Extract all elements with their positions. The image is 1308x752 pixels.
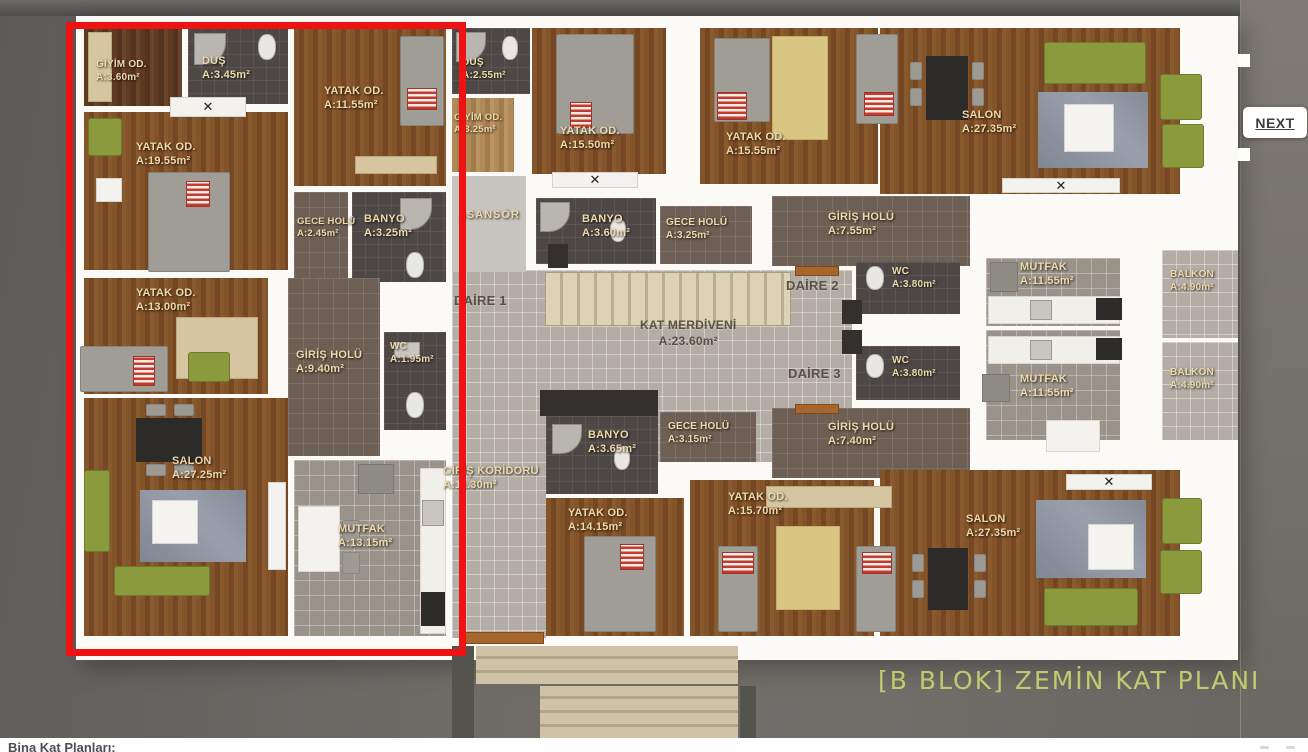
wardrobe-icon (552, 172, 638, 188)
room-area: A:15.55m² (726, 144, 786, 158)
stove (1096, 298, 1122, 320)
footer-mark (1260, 746, 1269, 749)
red-striped-throw (862, 552, 892, 574)
room-label: GECE HOLÜ (666, 217, 727, 228)
room-gece-holu-3: GECE HOLÜA:3.15m² (660, 412, 756, 462)
footer-mark (1286, 746, 1295, 749)
floor-plan-page: GİYİM OD.A:3.60m² DUŞA:3.45m² YATAK OD.A… (0, 0, 1308, 752)
shaft (548, 244, 568, 268)
red-striped-throw (722, 552, 754, 574)
stairs-label: KAT MERDİVENİA:23.60m² (640, 318, 736, 349)
green-armchair (1160, 74, 1202, 120)
room-giris-holu-3: GİRİŞ HOLÜA:7.40m² (772, 408, 970, 478)
room-label: WC (892, 355, 909, 366)
room-label: BALKON (1170, 367, 1214, 378)
shaft (842, 330, 862, 354)
room-area: A:2.55m² (462, 69, 506, 82)
yellow-bed (772, 36, 828, 140)
room-label: BANYO (588, 429, 629, 441)
next-button[interactable]: NEXT (1243, 107, 1307, 138)
room-label: SALON (966, 513, 1006, 525)
wall-stub (1238, 54, 1250, 67)
room-area: A:27.35m² (962, 122, 1016, 136)
daire-3-label: DAİRE 3 (788, 366, 841, 383)
elevator-label: ASANSÖR (458, 208, 520, 222)
room-label: BANYO (582, 213, 623, 225)
room-label: GECE HOLÜ (668, 421, 729, 432)
dining-table (928, 548, 968, 610)
chair (974, 580, 986, 598)
footer-section-label: Bina Kat Planları: (8, 740, 116, 752)
room-area: A:3.60m² (582, 226, 630, 240)
sink (1030, 300, 1052, 320)
chair (910, 88, 922, 106)
room-area: A:3.25m² (666, 229, 727, 242)
shaft (842, 300, 862, 324)
chair (974, 554, 986, 572)
room-label: YATAK OD. (560, 125, 620, 137)
entry-wall (740, 686, 756, 738)
room-area: A:3.80m² (892, 367, 936, 380)
chair (912, 554, 924, 572)
room-label: YATAK OD. (568, 507, 628, 519)
yellow-bed (776, 526, 840, 610)
room-gece-holu-2: GECE HOLÜA:3.25m² (660, 206, 752, 264)
room-label: WC (892, 266, 909, 277)
entrance-steps (540, 686, 738, 738)
room-area: A:4.90m² (1170, 281, 1214, 294)
page-footer: Bina Kat Planları: (0, 738, 1308, 752)
red-striped-throw (864, 92, 894, 116)
highlighted-apartment-outline (66, 22, 466, 656)
apartment-door (795, 404, 839, 414)
room-area: A:7.55m² (828, 224, 894, 238)
red-striped-throw (620, 544, 644, 570)
green-armchair (1162, 498, 1202, 544)
green-armchair (1160, 550, 1202, 594)
room-label: SALON (962, 109, 1002, 121)
red-striped-throw (717, 92, 747, 120)
coffee-table (1064, 104, 1114, 152)
toilet (866, 266, 884, 290)
fridge (990, 262, 1018, 292)
room-area: A:11.55m² (1020, 274, 1074, 288)
room-label: GİRİŞ HOLÜ (828, 421, 894, 433)
room-area: A:27.35m² (966, 526, 1020, 540)
top-wall-strip (0, 0, 1308, 16)
chair (972, 62, 984, 80)
room-area: A:11.55m² (1020, 386, 1074, 400)
chair (912, 580, 924, 598)
room-label: GİRİŞ HOLÜ (828, 211, 894, 223)
wall-stub (1238, 148, 1250, 161)
room-giris-holu-2: GİRİŞ HOLÜA:7.55m² (772, 196, 970, 266)
chair (972, 88, 984, 106)
room-area: A:14.15m² (568, 520, 628, 534)
fridge (982, 374, 1010, 402)
daire-2-label: DAİRE 2 (786, 278, 839, 295)
room-area: A:3.80m² (892, 278, 936, 291)
room-label: BALKON (1170, 269, 1214, 280)
chair (910, 62, 922, 80)
entry-wall (452, 646, 474, 738)
stove (1096, 338, 1122, 360)
room-label: MUTFAK (1020, 261, 1067, 273)
kitchen-table (1046, 420, 1100, 452)
green-sofa (1044, 588, 1138, 626)
sink (1030, 340, 1052, 360)
double-bed (556, 34, 634, 134)
room-area: A:15.50m² (560, 138, 620, 152)
room-area: A:4.90m² (1170, 379, 1214, 392)
toilet (866, 354, 884, 378)
green-sofa (1044, 42, 1146, 84)
dark-closet (540, 390, 658, 416)
tv-unit (1066, 474, 1152, 490)
room-label: YATAK OD. (726, 131, 786, 143)
building-entry-door (460, 632, 544, 644)
room-balkon-2: BALKONA:4.90m² (1162, 250, 1238, 338)
apartment-door (795, 266, 839, 276)
room-balkon-3: BALKONA:4.90m² (1162, 342, 1238, 440)
coffee-table (1088, 524, 1134, 570)
room-label: MUTFAK (1020, 373, 1067, 385)
room-area: A:3.15m² (668, 433, 729, 446)
room-area: A:15.70m² (728, 504, 788, 518)
entrance-steps (476, 646, 738, 684)
tv-unit (1002, 178, 1120, 193)
room-area: A:7.40m² (828, 434, 894, 448)
room-area: A:3.65m² (588, 442, 636, 456)
room-label: YATAK OD. (728, 491, 788, 503)
green-armchair (1162, 124, 1204, 168)
plan-caption: [B BLOK] ZEMİN KAT PLANI (878, 666, 1260, 695)
